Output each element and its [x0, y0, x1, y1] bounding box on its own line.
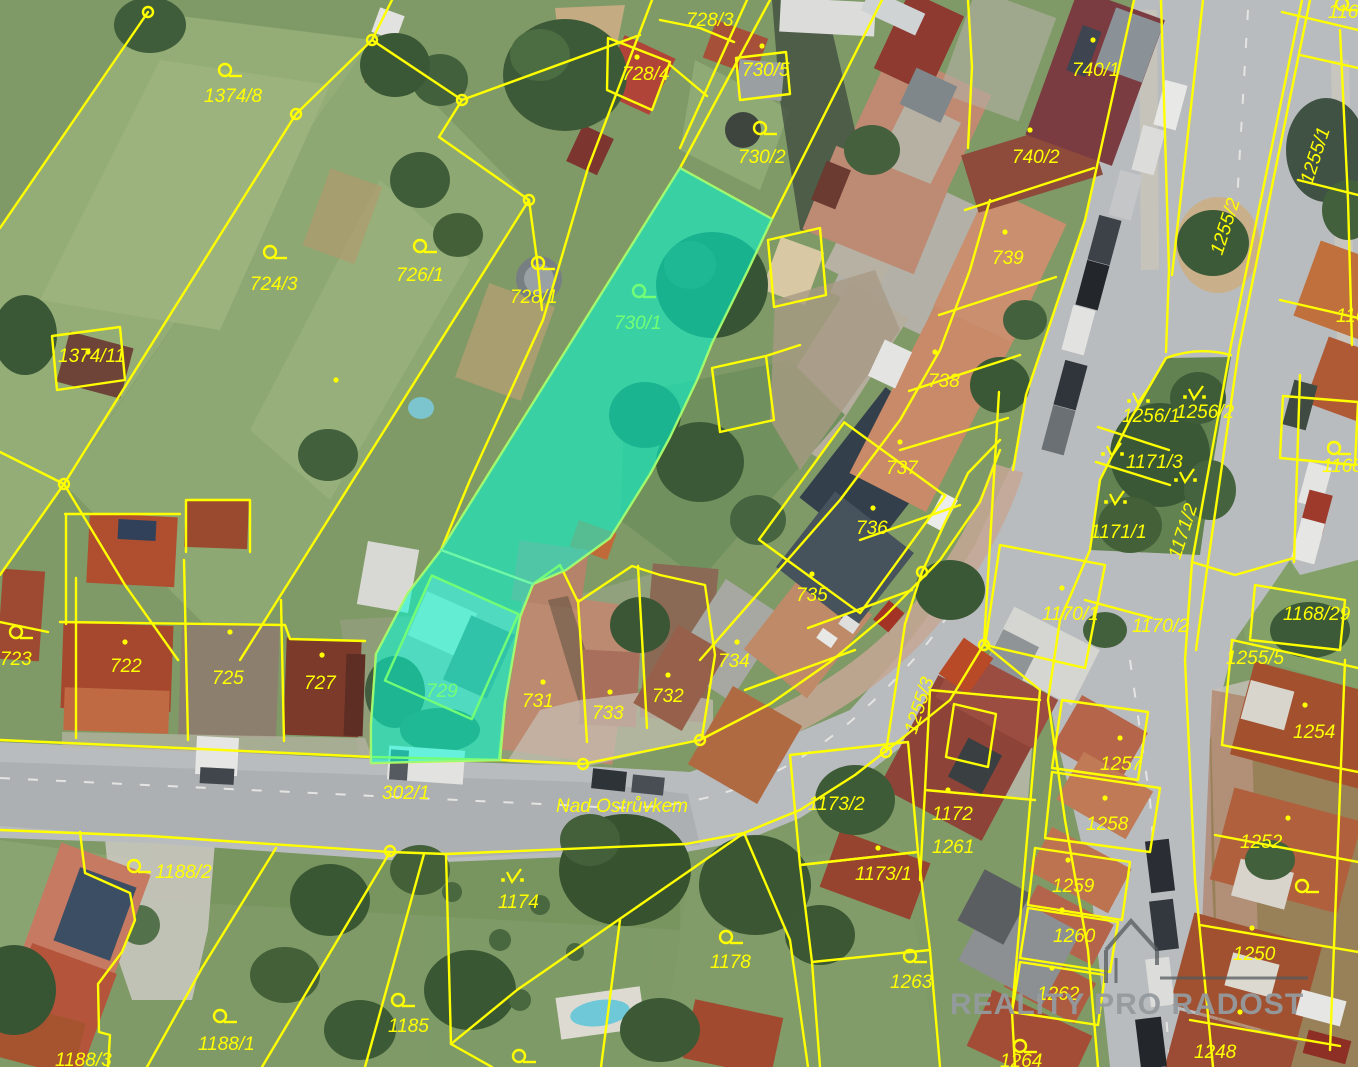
svg-text:727: 727 [304, 673, 337, 694]
svg-text:733: 733 [592, 703, 624, 724]
svg-text:1178: 1178 [710, 952, 751, 973]
svg-text:1259: 1259 [1052, 876, 1095, 897]
svg-text:730/2: 730/2 [738, 147, 786, 168]
svg-text:1173/2: 1173/2 [808, 794, 865, 815]
svg-text:1257: 1257 [1100, 754, 1144, 775]
svg-text:1252: 1252 [1240, 832, 1283, 853]
svg-text:1258: 1258 [1086, 814, 1129, 835]
svg-text:1173/1: 1173/1 [855, 864, 912, 885]
svg-text:1256/1: 1256/1 [1122, 406, 1180, 427]
svg-text:722: 722 [110, 656, 142, 677]
svg-text:116: 116 [1336, 306, 1358, 327]
svg-text:1250: 1250 [1233, 944, 1276, 965]
svg-text:1374/8: 1374/8 [204, 86, 263, 107]
svg-text:737: 737 [886, 458, 919, 479]
svg-text:1168/4: 1168/4 [1322, 456, 1358, 477]
svg-text:1264: 1264 [1000, 1051, 1042, 1067]
svg-text:1171/3: 1171/3 [1126, 452, 1183, 473]
svg-text:724/3: 724/3 [250, 274, 298, 295]
svg-text:1374/11: 1374/11 [58, 346, 125, 367]
svg-text:Nad Ostrůvkem: Nad Ostrůvkem [556, 796, 688, 817]
svg-text:1263: 1263 [890, 972, 933, 993]
svg-text:740/2: 740/2 [1012, 147, 1060, 168]
svg-text:1185: 1185 [388, 1016, 429, 1037]
svg-text:740/1: 740/1 [1072, 60, 1120, 81]
svg-text:REALITY PRO RADOST: REALITY PRO RADOST [950, 988, 1304, 1021]
svg-text:739: 739 [992, 248, 1024, 269]
svg-text:726/1: 726/1 [396, 265, 444, 286]
svg-text:728/4: 728/4 [622, 64, 670, 85]
svg-text:1248: 1248 [1194, 1042, 1237, 1063]
svg-text:1168/29: 1168/29 [1283, 604, 1351, 625]
svg-text:1256/2: 1256/2 [1176, 402, 1235, 423]
svg-text:725: 725 [212, 668, 244, 689]
svg-text:731: 731 [522, 691, 554, 712]
svg-text:1260: 1260 [1053, 926, 1096, 947]
svg-text:1254: 1254 [1293, 722, 1335, 743]
svg-text:735: 735 [796, 585, 828, 606]
svg-text:1171/1: 1171/1 [1090, 522, 1147, 543]
svg-text:736: 736 [856, 518, 888, 539]
svg-text:1170/2: 1170/2 [1132, 616, 1189, 637]
svg-text:1261: 1261 [932, 837, 974, 858]
svg-text:1164: 1164 [1328, 2, 1358, 23]
svg-text:738: 738 [928, 371, 960, 392]
svg-text:1188/2: 1188/2 [155, 862, 212, 883]
svg-text:1174: 1174 [498, 892, 539, 913]
svg-text:728/3: 728/3 [686, 10, 734, 31]
svg-text:732: 732 [652, 686, 684, 707]
svg-text:728/1: 728/1 [510, 287, 558, 308]
svg-text:1188/1: 1188/1 [198, 1034, 255, 1055]
svg-text:1172: 1172 [932, 804, 973, 825]
svg-text:730/5: 730/5 [742, 60, 790, 81]
svg-text:302/1: 302/1 [382, 783, 430, 804]
svg-text:1188/3: 1188/3 [55, 1050, 112, 1067]
svg-text:1170/1: 1170/1 [1042, 604, 1099, 625]
svg-text:723: 723 [0, 649, 32, 670]
svg-text:1255/5: 1255/5 [1226, 648, 1285, 669]
svg-text:734: 734 [718, 651, 750, 672]
